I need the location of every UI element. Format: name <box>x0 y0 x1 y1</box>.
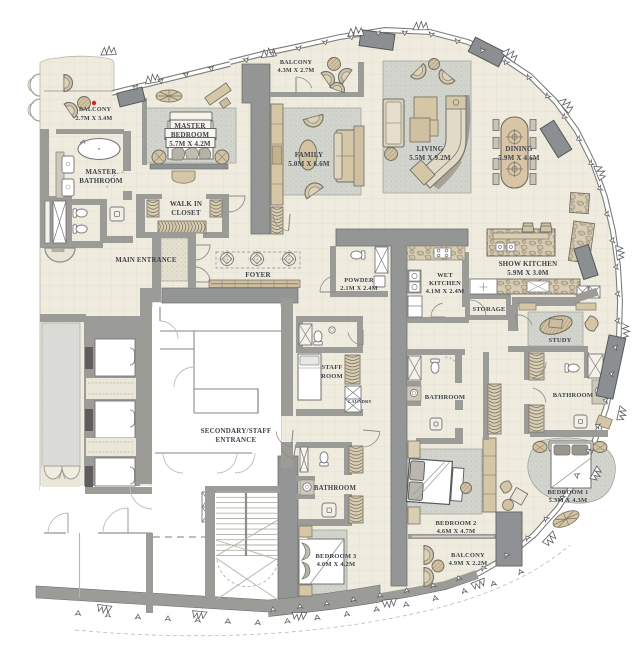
svg-text:SECONDARY/STAFF: SECONDARY/STAFF <box>201 427 272 435</box>
svg-text:4.9M X 2.2M: 4.9M X 2.2M <box>449 560 488 567</box>
svg-text:ROOM: ROOM <box>321 373 343 380</box>
svg-text:5.9M X 3.0M: 5.9M X 3.0M <box>507 269 549 277</box>
svg-text:KITCHEN: KITCHEN <box>429 280 461 287</box>
svg-text:4.0M X 4.2M: 4.0M X 4.2M <box>317 561 356 568</box>
svg-text:LAUNDRY: LAUNDRY <box>348 399 372 404</box>
svg-text:MASTER: MASTER <box>174 122 206 130</box>
svg-text:4.6M X 4.7M: 4.6M X 4.7M <box>437 528 476 535</box>
svg-text:5.3M X 4.3M: 5.3M X 4.3M <box>549 497 588 504</box>
svg-text:MAIN ENTRANCE: MAIN ENTRANCE <box>115 257 177 264</box>
svg-text:WET: WET <box>437 272 453 279</box>
svg-text:BATHROOM: BATHROOM <box>314 485 357 492</box>
svg-text:POWDER: POWDER <box>344 277 374 284</box>
svg-text:FOYER: FOYER <box>245 271 271 279</box>
svg-text:5.7M X 4.2M: 5.7M X 4.2M <box>169 140 211 148</box>
svg-text:STORAGE: STORAGE <box>472 306 505 313</box>
svg-text:BALCONY: BALCONY <box>79 106 112 113</box>
svg-text:LIVING: LIVING <box>417 145 444 153</box>
svg-text:BATHROOM: BATHROOM <box>79 177 123 185</box>
svg-text:BEDROOM: BEDROOM <box>171 131 210 139</box>
svg-text:2.1M X 2.4M: 2.1M X 2.4M <box>340 285 378 292</box>
svg-text:5.5M X 9.2M: 5.5M X 9.2M <box>409 154 451 162</box>
svg-text:STUDY: STUDY <box>548 337 571 344</box>
svg-text:5.0M X 6.6M: 5.0M X 6.6M <box>288 160 330 168</box>
svg-text:BALCONY: BALCONY <box>280 59 313 66</box>
svg-text:BATHROOM: BATHROOM <box>425 394 465 401</box>
svg-text:BEDROOM 3: BEDROOM 3 <box>316 553 358 560</box>
svg-text:SHOW KITCHEN: SHOW KITCHEN <box>499 260 558 268</box>
svg-text:WALK IN: WALK IN <box>170 200 202 208</box>
svg-text:BEDROOM 2: BEDROOM 2 <box>436 520 477 527</box>
svg-text:DINING: DINING <box>505 145 533 153</box>
svg-text:2.7M X 3.4M: 2.7M X 3.4M <box>76 115 113 122</box>
svg-text:5.9M X 4.6M: 5.9M X 4.6M <box>498 154 540 162</box>
svg-text:CLOSET: CLOSET <box>171 209 201 217</box>
svg-text:BATHROOM: BATHROOM <box>553 392 593 399</box>
svg-text:BALCONY: BALCONY <box>451 552 485 559</box>
svg-text:4.3M X 2.7M: 4.3M X 2.7M <box>278 67 315 74</box>
svg-text:BEDROOM 1: BEDROOM 1 <box>548 489 589 496</box>
svg-text:MASTER: MASTER <box>85 168 117 176</box>
svg-text:FAMILY: FAMILY <box>295 151 323 159</box>
svg-text:STAFF: STAFF <box>321 364 342 371</box>
svg-text:ENTRANCE: ENTRANCE <box>216 436 257 444</box>
svg-text:4.1M X 2.4M: 4.1M X 2.4M <box>426 288 465 295</box>
